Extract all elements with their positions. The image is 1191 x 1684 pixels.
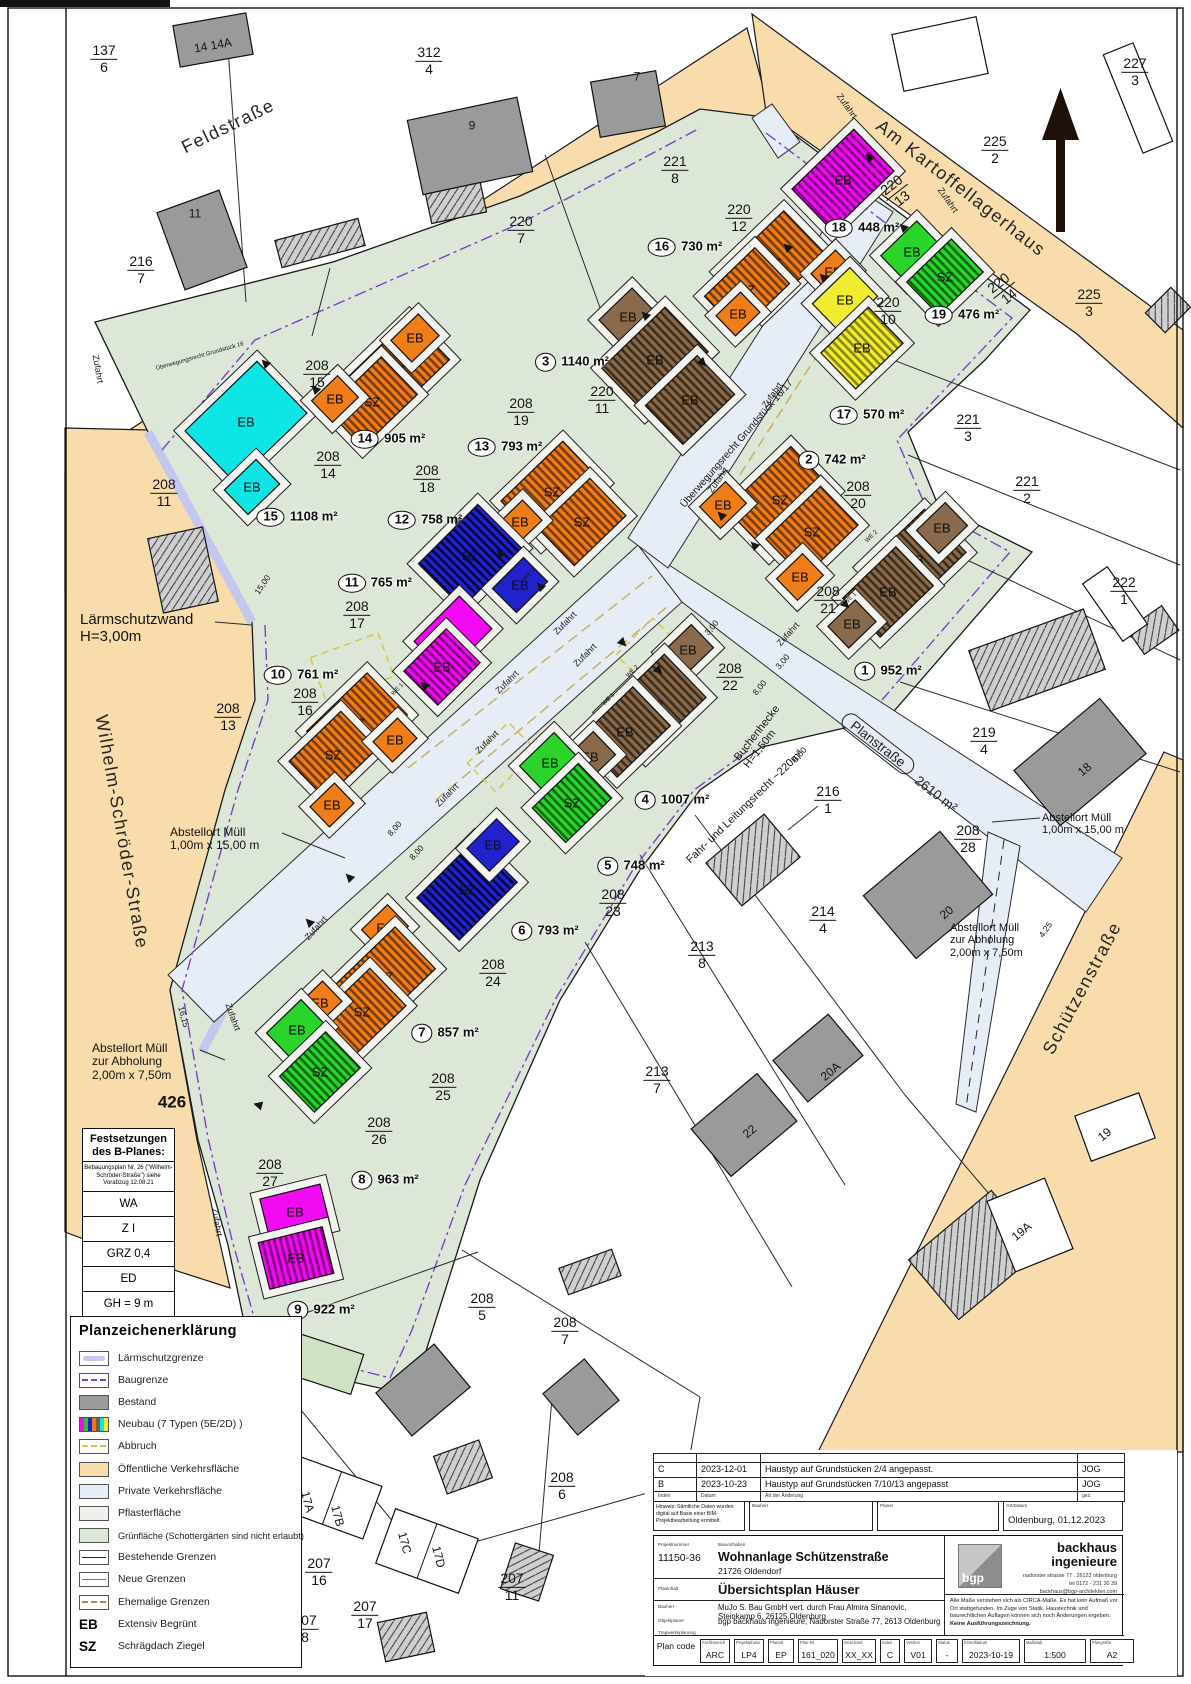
plancode-version: VersionV01 xyxy=(904,1639,932,1663)
swatch-bestand xyxy=(79,1395,109,1410)
house-label: EB xyxy=(791,570,808,585)
plancode-index: IndexC xyxy=(880,1639,900,1663)
planinhalt: Übersichtsplan Häuser xyxy=(718,1582,860,1597)
house-label: EB xyxy=(326,392,343,407)
festsetzung-ed: ED xyxy=(83,1266,174,1291)
legend-item: Baugrenze xyxy=(79,1369,293,1391)
outline-building xyxy=(1103,43,1172,153)
swatch-neubau xyxy=(79,1417,109,1432)
outline-building xyxy=(892,17,988,92)
plancode-massstab: Maßstab1:500 xyxy=(1024,1639,1086,1663)
house-label: SZ xyxy=(772,493,789,508)
objektplaner-label: Objektplaner xyxy=(658,1618,684,1623)
house-label: SZ xyxy=(459,883,476,898)
plancode-plannr: Plan-Nr.161_020 xyxy=(798,1639,838,1663)
house-label: EB xyxy=(646,353,663,368)
site-plan-sheet: EBEBSZSZEBEBEBEBEBSZSZEBEBEBEBSZEBEBSZSZ… xyxy=(0,0,1191,1684)
swatch-abbruch xyxy=(79,1439,109,1454)
house-label: EB xyxy=(406,331,423,346)
festsetzungen-box: Festsetzungendes B-Planes: Bebauungsplan… xyxy=(82,1128,175,1317)
hinweis-box: Hinweis: Sämtliche Daten wurden digital … xyxy=(653,1501,745,1531)
plancode-status: Status- xyxy=(936,1639,958,1663)
swatch-eb: EB xyxy=(79,1617,109,1632)
house-label: EB xyxy=(484,838,501,853)
house-label: EB xyxy=(853,341,870,356)
legend-item: Öffentliche Verkehrsfläche xyxy=(79,1458,293,1480)
house-label: EB xyxy=(903,245,920,260)
legend-item: Private Verkehrsfläche xyxy=(79,1480,293,1502)
plancode-fachbereich: FachbereichARC xyxy=(700,1639,730,1663)
house-label: EB xyxy=(287,1251,304,1266)
legend-item: EBExtensiv Begrünt xyxy=(79,1613,293,1635)
house-label: EB xyxy=(714,498,731,513)
house-label: EB xyxy=(433,660,450,675)
bestand-building xyxy=(559,1249,621,1294)
north-arrow xyxy=(1042,88,1079,232)
festsetzung-zi: Z I xyxy=(83,1216,174,1241)
house-label: SZ xyxy=(312,1065,329,1080)
plancode-row: Plan code FachbereichARC ProjektphaseLP4… xyxy=(654,1635,1124,1665)
legend-item: Pflasterfläche xyxy=(79,1502,293,1524)
bestand-building xyxy=(591,71,666,138)
firma-name: backhaus ingenieure xyxy=(1051,1541,1117,1568)
house-label: EB xyxy=(243,480,260,495)
house-label: SZ xyxy=(574,515,591,530)
circa-hinweis: Alle Maße verstehen sich als CIRCA-Maße.… xyxy=(950,1598,1118,1628)
bauvorhaben: Bauvorhaben Wohnanlage Schützenstraße 21… xyxy=(718,1538,889,1576)
outline-building xyxy=(1083,567,1148,642)
house-label: EB xyxy=(619,310,636,325)
swatch-neue-grenzen xyxy=(79,1572,109,1587)
house-label: EB xyxy=(843,617,860,632)
house-label: EB xyxy=(386,733,403,748)
house-label: SZ xyxy=(354,1005,371,1020)
swatch-baugrenze xyxy=(79,1373,109,1388)
planinhalt-label-wrap: Planinhalt xyxy=(658,1582,678,1592)
plancode-geschoss: GeschossXX_XX xyxy=(842,1639,876,1663)
swatch-oeffentliche-verkehrsflaeche xyxy=(79,1462,109,1477)
titleblock-line xyxy=(944,1594,1124,1595)
bauvorhaben-ort: 21726 Oldendorf xyxy=(718,1566,889,1576)
house-label: SZ xyxy=(804,525,821,540)
legend-item: Neubau (7 Typen (5E/2D) ) xyxy=(79,1414,293,1436)
bauherr-empty-box: Bauherr xyxy=(749,1501,873,1531)
legend-item: Bestehende Grenzen xyxy=(79,1547,293,1569)
plancode-projektphase: ProjektphaseLP4 xyxy=(734,1639,764,1663)
festsetzungen-title: Festsetzungendes B-Planes: xyxy=(83,1129,174,1161)
bestand-building xyxy=(501,1543,554,1601)
legend-box: Planzeichenerklärung Lärmschutzgrenze Ba… xyxy=(70,1316,302,1668)
swatch-gruenflaeche xyxy=(79,1528,109,1543)
titleblock-main: Projektnummer 11150-36 Bauvorhaben Wohna… xyxy=(653,1535,1123,1666)
swatch-ehemalige-grenzen xyxy=(79,1595,109,1610)
bestand-building xyxy=(434,1440,493,1494)
plancode-erstelldatum: Erstelldatum2023-10-19 xyxy=(962,1639,1020,1663)
titleblock-divider xyxy=(944,1536,945,1635)
ort-datum-box: Ort/Datum Oldenburg, 01.12.2023 xyxy=(1003,1501,1123,1531)
legend-item: Grünfläche (Schottergärten sind nicht er… xyxy=(79,1525,293,1547)
bestand-building xyxy=(691,1074,797,1177)
bestand-building xyxy=(863,831,992,958)
house-label: EB xyxy=(511,578,528,593)
bestand-building xyxy=(157,190,247,290)
house-label: EB xyxy=(616,725,633,740)
legend-item: Neue Grenzen xyxy=(79,1569,293,1591)
legend-item: Bestand xyxy=(79,1391,293,1413)
house-label: SZ xyxy=(564,796,581,811)
plancode-label: Plan code xyxy=(656,1639,696,1663)
swatch-private-verkehrsflaeche xyxy=(79,1484,109,1499)
festsetzungen-subtitle: Bebauungsplan Nr. 26 ("Wilhelm-Schröder-… xyxy=(83,1161,174,1191)
revision-row: B 2023-10-23 Haustyp auf Grundstücken 7/… xyxy=(654,1477,1124,1491)
ort-datum-value: Oldenburg, 01.12.2023 xyxy=(1008,1515,1105,1526)
plancode-planart: PlanartEP xyxy=(768,1639,794,1663)
house-label: SZ xyxy=(937,270,954,285)
bauherr-label: Bauherr xyxy=(658,1604,674,1609)
titleblock-line xyxy=(654,1600,944,1601)
bestand-building xyxy=(543,1359,619,1435)
house-label: EB xyxy=(286,1205,303,1220)
legend-title: Planzeichenerklärung xyxy=(79,1323,293,1339)
legend-item: Ehemalige Grenzen xyxy=(79,1591,293,1613)
house-label: SZ xyxy=(544,485,561,500)
house-label: EB xyxy=(679,643,696,658)
festsetzung-gh: GH = 9 m xyxy=(83,1291,174,1316)
house-label: EB xyxy=(288,1023,305,1038)
objektplaner-value: bgp backhaus ingenieure, Nadorster Straß… xyxy=(718,1617,942,1626)
house-label: EB xyxy=(511,515,528,530)
festsetzung-wa: WA xyxy=(83,1191,174,1216)
house-label: EB xyxy=(237,415,254,430)
titleblock: C 2023-12-01 Haustyp auf Grundstücken 2/… xyxy=(645,1450,1177,1676)
house-label: EB xyxy=(836,293,853,308)
house-label: SZ xyxy=(325,748,342,763)
house-label: EB xyxy=(541,756,558,771)
bestand-building xyxy=(173,13,253,67)
bestand-building xyxy=(773,1014,863,1102)
plancode-plangroesse: PlangrößeA2 xyxy=(1090,1639,1134,1663)
swatch-laermschutzgrenze xyxy=(79,1351,109,1366)
house-label: EB xyxy=(681,393,698,408)
legend-item: Lärmschutzgrenze xyxy=(79,1347,293,1369)
house-label: EB xyxy=(834,173,851,188)
revision-table: C 2023-12-01 Haustyp auf Grundstücken 2/… xyxy=(653,1453,1125,1502)
legend-item: Abbruch xyxy=(79,1436,293,1458)
firma-adresse: nadorster strasse 77 . 26123 oldenburg t… xyxy=(1023,1572,1117,1596)
outline-building xyxy=(376,1509,479,1594)
house-label: EB xyxy=(879,585,896,600)
house-label: EB xyxy=(933,521,950,536)
house-label: EB xyxy=(729,307,746,322)
house-label: EB xyxy=(323,798,340,813)
legend-item: SZSchrägdach Ziegel xyxy=(79,1635,293,1657)
swatch-sz: SZ xyxy=(79,1639,109,1654)
swatch-pflasterflaeche xyxy=(79,1506,109,1521)
festsetzung-grz: GRZ 0,4 xyxy=(83,1241,174,1266)
bgp-logo: bgp xyxy=(958,1544,1002,1588)
bestand-building xyxy=(706,814,800,906)
bestand-building xyxy=(969,609,1106,711)
revision-header-row: Index Datum Art der Änderung gez. xyxy=(654,1491,1124,1501)
revision-row: C 2023-12-01 Haustyp auf Grundstücken 2/… xyxy=(654,1462,1124,1477)
projektnummer: Projektnummer 11150-36 xyxy=(658,1538,701,1564)
swatch-bestehende-grenzen xyxy=(79,1550,109,1565)
house-label: SZ xyxy=(462,549,479,564)
titleblock-line xyxy=(654,1578,944,1579)
planer-empty-box: Planer xyxy=(877,1501,999,1531)
bestand-building xyxy=(377,1612,434,1662)
